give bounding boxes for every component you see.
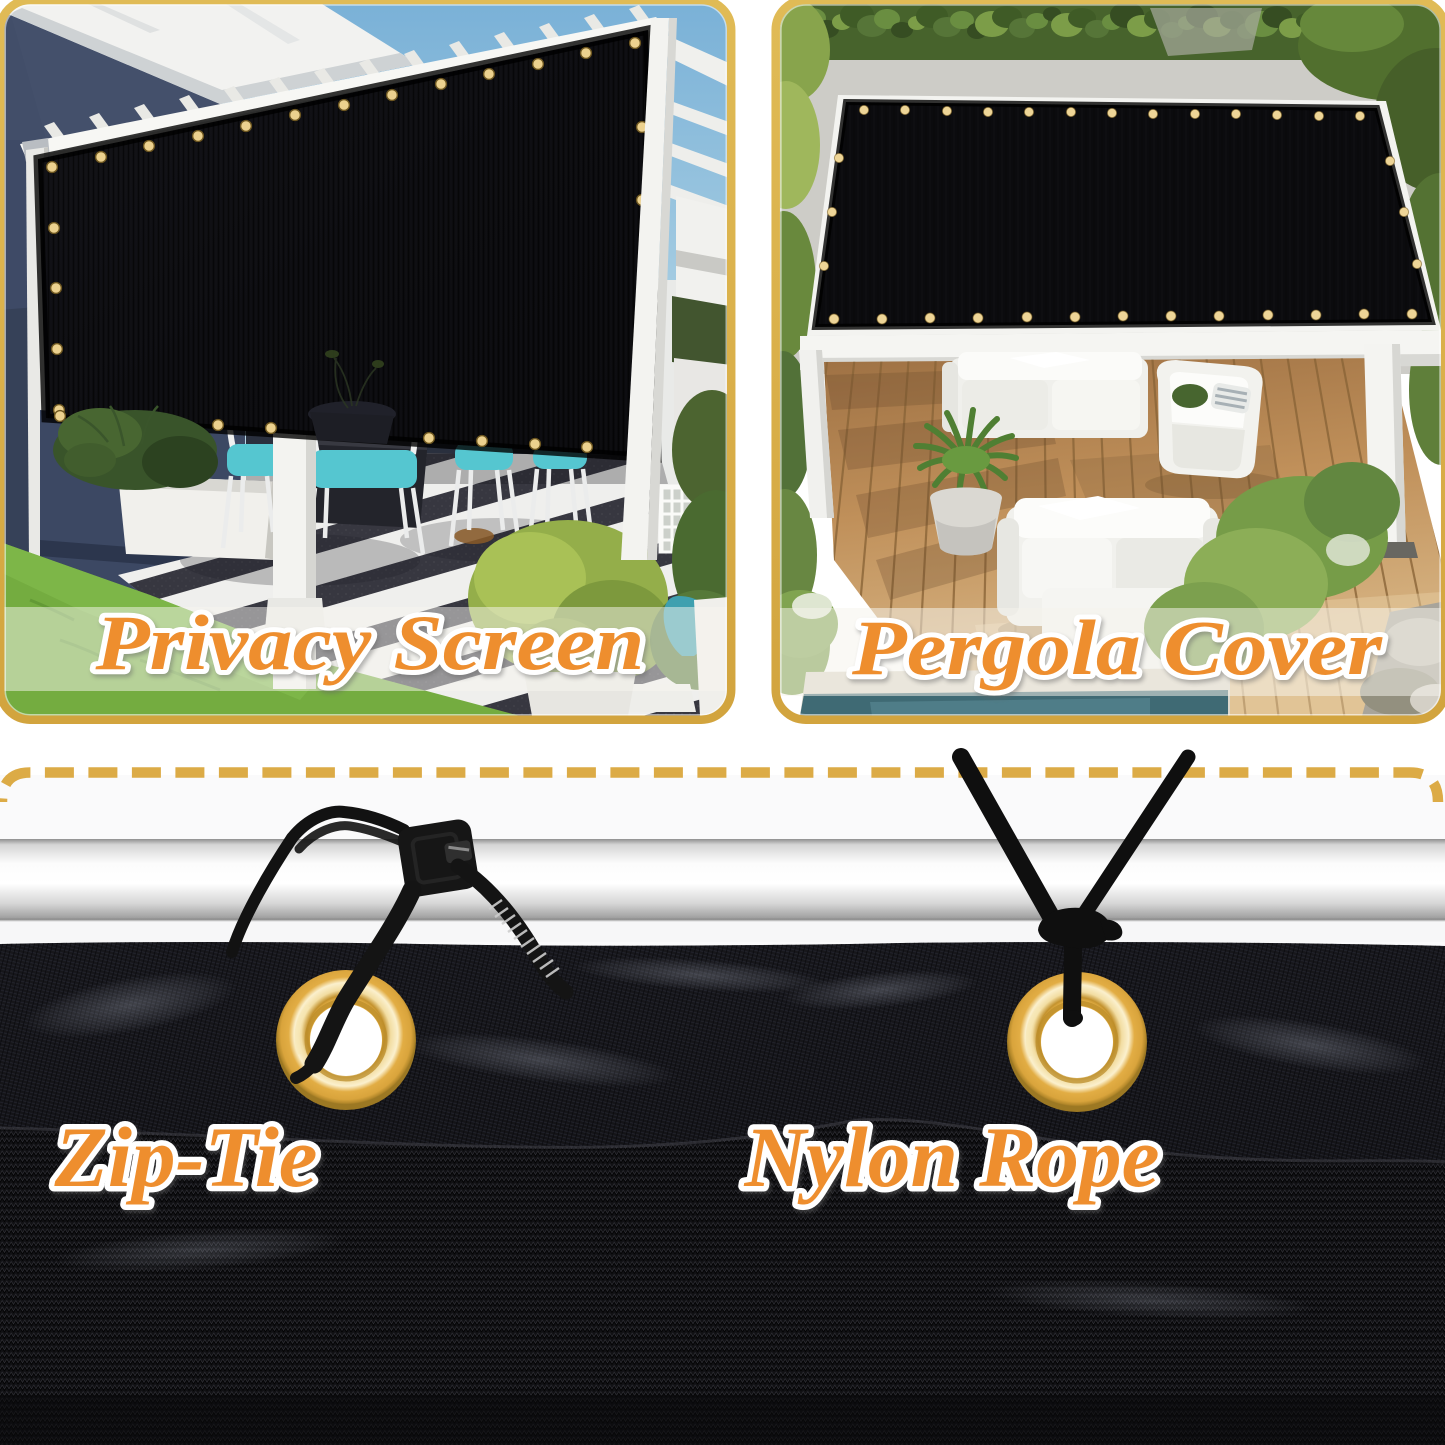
svg-text:Pergola Cover: Pergola Cover — [851, 604, 1383, 691]
svg-text:Zip-Tie: Zip-Tie — [53, 1109, 317, 1205]
svg-text:Nylon Rope: Nylon Rope — [744, 1109, 1160, 1205]
svg-text:Privacy Screen: Privacy Screen — [94, 599, 644, 686]
